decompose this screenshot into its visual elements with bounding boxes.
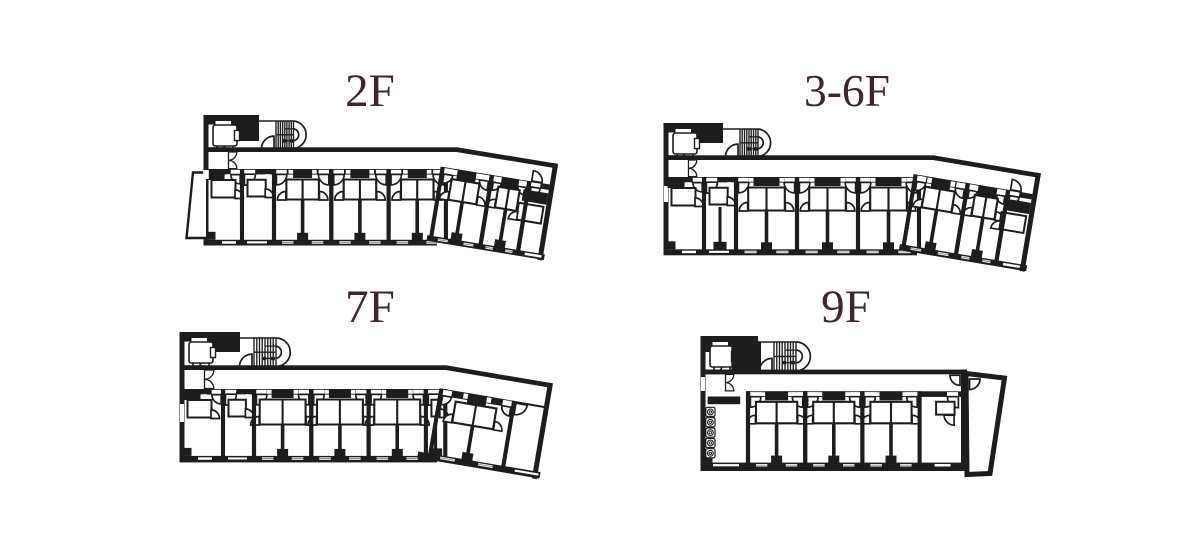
svg-text:3-6F: 3-6F <box>804 65 890 116</box>
svg-text:9F: 9F <box>821 281 871 333</box>
svg-text:7F: 7F <box>345 281 395 333</box>
svg-text:2F: 2F <box>345 65 395 117</box>
